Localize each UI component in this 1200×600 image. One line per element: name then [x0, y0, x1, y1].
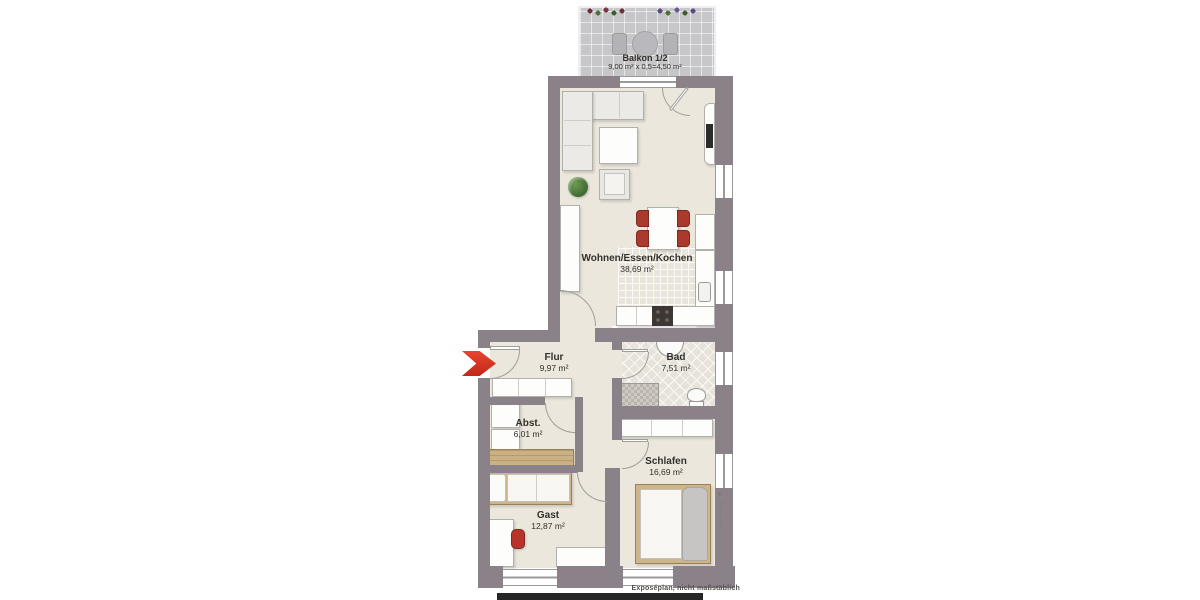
room-label-schlafen: Schlafen 16,69 m² — [645, 456, 687, 477]
room-area: 7,51 m² — [662, 364, 691, 374]
wall — [478, 566, 503, 588]
desk-chair-icon — [511, 529, 525, 549]
room-name: Wohnen/Essen/Kochen — [582, 253, 693, 265]
window-icon — [715, 271, 733, 304]
tall-cabinet-icon — [695, 214, 715, 250]
room-name: Schlafen — [645, 456, 687, 468]
bed-seam — [536, 475, 537, 501]
room-area: 16,69 m² — [645, 468, 687, 478]
bed-blanket — [682, 487, 708, 561]
wardrobe-seam — [682, 420, 683, 436]
room-area: 38,69 m² — [582, 265, 693, 275]
plant-icon — [568, 177, 588, 197]
wardrobe-seam — [651, 420, 652, 436]
room-name: Abst. — [514, 418, 543, 430]
room-label-wohnen: Wohnen/Essen/Kochen 38,69 m² — [582, 253, 693, 274]
stove-icon — [652, 306, 673, 326]
sofa-seam — [619, 93, 620, 118]
counter-seam — [636, 307, 637, 325]
wall — [605, 468, 620, 568]
hall-wardrobe-icon — [492, 378, 572, 397]
sofa-seam — [593, 93, 594, 118]
sofa-seam — [564, 120, 591, 121]
wall — [557, 566, 623, 588]
wall — [478, 465, 578, 473]
room-area: 9,97 m² — [540, 364, 569, 374]
window-icon — [623, 569, 673, 586]
bed-pillow — [488, 474, 506, 502]
dining-chair-icon — [677, 230, 690, 247]
balcony-chair-icon — [663, 33, 678, 55]
window-icon — [715, 165, 733, 198]
sofa-seam — [564, 145, 591, 146]
window-icon — [715, 352, 733, 385]
coffee-table-icon — [599, 127, 638, 164]
dining-chair-icon — [636, 210, 649, 227]
floorplan-canvas: Balkon 1/2 9,00 m² x 0,5=4,50 m² Wohnen/… — [0, 0, 1200, 600]
scale-bar-icon — [497, 593, 703, 600]
room-label-abst: Abst. 6,01 m² — [514, 418, 543, 439]
desk-icon — [487, 519, 514, 567]
window-icon — [503, 569, 557, 586]
toilet-icon — [687, 388, 706, 402]
room-label-balkon: Balkon 1/2 9,00 m² x 0,5=4,50 m² — [608, 53, 682, 72]
room-name: Bad — [662, 352, 691, 364]
room-area: 6,01 m² — [514, 430, 543, 440]
wall — [595, 328, 715, 342]
balcony-door-icon — [620, 76, 676, 88]
bed-mattress — [507, 474, 570, 502]
flower-box-icon — [584, 5, 628, 18]
wardrobe-seam — [545, 379, 546, 396]
window-icon — [715, 454, 733, 488]
room-name: Gast — [531, 510, 565, 522]
room-label-bad: Bad 7,51 m² — [662, 352, 691, 373]
wall — [478, 330, 560, 342]
wall — [612, 342, 622, 350]
footer-note: Exposéplan, nicht maßstäblich — [632, 585, 741, 592]
flower-box-icon — [654, 5, 700, 18]
corner-sofa-icon — [562, 91, 593, 171]
bed-mattress — [640, 489, 682, 559]
room-area: 9,00 m² x 0,5=4,50 m² — [608, 63, 682, 72]
wall-shelf-icon — [560, 205, 580, 292]
room-area: 12,87 m² — [531, 522, 565, 532]
wall — [612, 406, 715, 419]
wardrobe-seam — [518, 379, 519, 396]
wall — [478, 397, 545, 405]
room-label-flur: Flur 9,97 m² — [540, 352, 569, 373]
shower-icon — [621, 383, 659, 408]
dining-chair-icon — [677, 210, 690, 227]
dining-chair-icon — [636, 230, 649, 247]
vertical-watermark: © ‧‧‧‧‧‧‧‧‧‧‧‧‧ — [717, 492, 723, 570]
wall — [575, 397, 583, 472]
dining-table-icon — [647, 207, 679, 250]
kitchen-sink-icon — [698, 282, 711, 302]
armchair-cushion — [604, 173, 625, 195]
lowboard-icon — [556, 547, 611, 567]
room-label-gast: Gast 12,87 m² — [531, 510, 565, 531]
balcony-chair-icon — [612, 33, 627, 55]
tv-screen-icon — [706, 124, 713, 148]
wardrobe-icon — [620, 419, 713, 437]
room-name: Flur — [540, 352, 569, 364]
wall — [548, 76, 560, 342]
